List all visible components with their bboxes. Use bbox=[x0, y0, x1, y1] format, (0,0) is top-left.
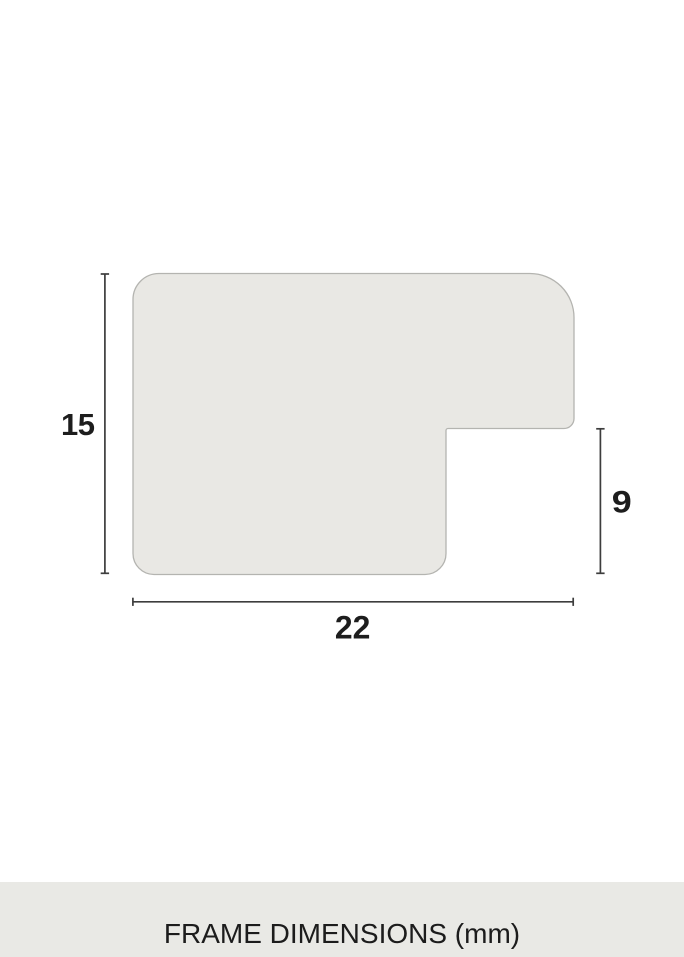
svg-text:9: 9 bbox=[612, 483, 632, 519]
svg-text:FRAME DIMENSIONS (mm): FRAME DIMENSIONS (mm) bbox=[164, 918, 520, 949]
svg-text:22: 22 bbox=[335, 609, 371, 645]
svg-text:15: 15 bbox=[61, 407, 95, 442]
